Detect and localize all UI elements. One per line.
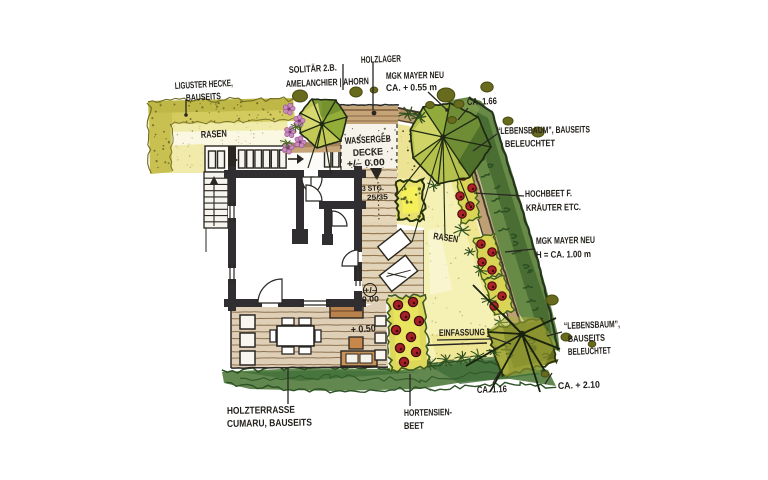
svg-text:“LEBENSBAUM”, BAUSEITS: “LEBENSBAUM”, BAUSEITS xyxy=(497,124,590,137)
svg-text:BELEUCHTET: BELEUCHTET xyxy=(505,138,555,150)
svg-text:HOLZTERRASSE: HOLZTERRASSE xyxy=(227,405,295,417)
svg-text:CUMARU, BAUSEITS: CUMARU, BAUSEITS xyxy=(227,418,312,430)
svg-text:BAUSEITS: BAUSEITS xyxy=(186,91,222,104)
svg-text:+ 0.50: + 0.50 xyxy=(350,323,376,336)
svg-text:“LEBENSBAUM”,: “LEBENSBAUM”, xyxy=(564,319,620,332)
svg-text:HOLZLAGER: HOLZLAGER xyxy=(361,54,401,66)
svg-text:H = CA. 1.00 m: H = CA. 1.00 m xyxy=(536,249,591,261)
svg-text:CA. + 0.55 m: CA. + 0.55 m xyxy=(386,82,437,94)
svg-text:BELEUCHTET: BELEUCHTET xyxy=(568,345,611,357)
svg-text:CA. 1.66: CA. 1.66 xyxy=(467,96,497,108)
svg-text:HOCHBEET F.: HOCHBEET F. xyxy=(525,188,572,200)
svg-text:RASEN: RASEN xyxy=(201,129,228,141)
svg-text:MGK MAYER NEU: MGK MAYER NEU xyxy=(536,235,595,247)
svg-text:HORTENSIEN-: HORTENSIEN- xyxy=(404,407,452,419)
svg-text:0.00: 0.00 xyxy=(362,294,380,304)
svg-text:25/35: 25/35 xyxy=(367,192,388,202)
svg-text:MGK MAYER NEU: MGK MAYER NEU xyxy=(386,70,444,82)
svg-text:KRÄUTER ETC.: KRÄUTER ETC. xyxy=(526,202,581,214)
svg-text:CA. 1.16: CA. 1.16 xyxy=(477,384,507,396)
svg-text:EINFASSUNG: EINFASSUNG xyxy=(439,327,485,339)
svg-text:+/– 0.00: +/– 0.00 xyxy=(347,157,386,170)
svg-text:CA. + 2.10: CA. + 2.10 xyxy=(558,380,600,392)
svg-text:BEET: BEET xyxy=(404,421,424,432)
svg-text:BAUSEITS: BAUSEITS xyxy=(568,333,605,345)
